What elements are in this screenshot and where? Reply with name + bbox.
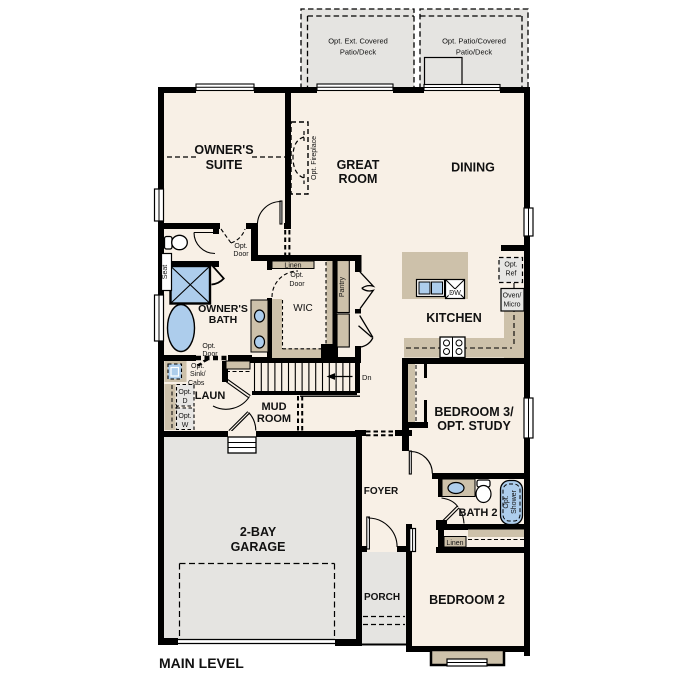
svg-text:BATH 2: BATH 2 [459,507,498,519]
svg-text:Opt.: Opt. [504,262,517,269]
svg-text:Patio/Deck: Patio/Deck [456,48,493,57]
svg-text:Shower: Shower [511,489,518,513]
svg-text:DW: DW [449,290,461,297]
svg-text:GARAGE: GARAGE [231,540,286,554]
svg-text:OWNER'S: OWNER'S [194,143,253,157]
svg-text:W: W [182,422,189,429]
svg-text:Micro: Micro [503,302,520,309]
svg-text:BATH: BATH [209,314,237,326]
svg-text:Pantry: Pantry [339,276,346,297]
svg-text:Opt. Fireplace: Opt. Fireplace [311,136,318,180]
svg-text:Opt. Patio/Covered: Opt. Patio/Covered [442,37,506,46]
svg-text:PORCH: PORCH [364,592,400,603]
svg-text:Door: Door [202,351,218,358]
svg-text:Opt.: Opt. [178,389,191,396]
svg-text:BEDROOM 2: BEDROOM 2 [429,593,505,607]
svg-text:WIC: WIC [293,303,312,314]
svg-text:Linen: Linen [446,540,463,547]
svg-text:Seat: Seat [162,265,169,279]
svg-text:ROOM: ROOM [339,172,378,186]
svg-text:Dn: Dn [362,373,372,382]
svg-text:2-BAY: 2-BAY [240,525,277,539]
svg-text:GREAT: GREAT [337,158,380,172]
svg-text:Opt.: Opt. [191,363,204,370]
svg-text:FOYER: FOYER [364,486,399,497]
svg-text:Patio/Deck: Patio/Deck [340,48,377,57]
svg-text:Door: Door [289,281,305,288]
svg-text:OPT. STUDY: OPT. STUDY [437,419,511,433]
svg-text:KITCHEN: KITCHEN [426,311,482,325]
svg-text:Door: Door [233,251,249,258]
svg-text:Oven/: Oven/ [503,293,522,300]
svg-text:SUITE: SUITE [206,158,243,172]
svg-text:LAUN: LAUN [195,390,226,402]
svg-text:Opt. Ext. Covered: Opt. Ext. Covered [328,37,388,46]
svg-text:MUD: MUD [261,401,286,413]
svg-text:Opt.: Opt. [503,495,510,508]
svg-text:Ref: Ref [506,271,517,278]
svg-text:Opt.: Opt. [290,272,303,279]
svg-text:BEDROOM 3/: BEDROOM 3/ [434,405,514,419]
svg-text:Opt.: Opt. [202,343,215,350]
svg-text:MAIN LEVEL: MAIN LEVEL [159,655,244,671]
svg-text:Linen: Linen [284,263,301,270]
svg-text:Opt.: Opt. [234,243,247,250]
svg-text:D: D [182,398,187,405]
svg-text:Opt.: Opt. [178,413,191,420]
svg-text:Sink/: Sink/ [190,371,206,378]
svg-text:ROOM: ROOM [257,413,291,425]
svg-text:DINING: DINING [451,161,495,175]
